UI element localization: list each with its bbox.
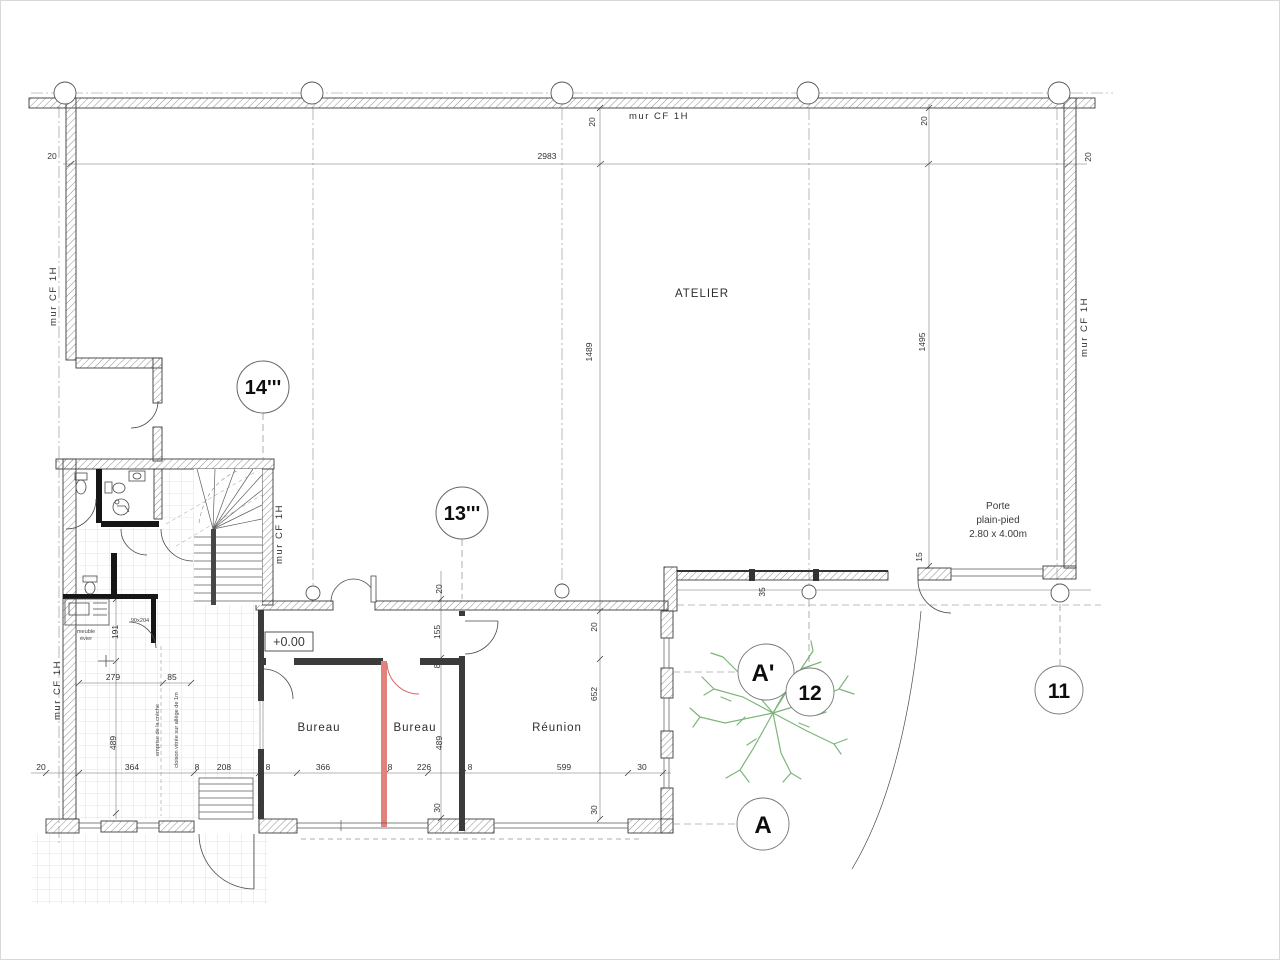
marker-label-a: A bbox=[754, 812, 771, 839]
porte-note: Porte plain-pied 2.80 x 4.00m bbox=[969, 501, 1027, 540]
room-label-reunion: Réunion bbox=[532, 722, 582, 734]
floor-plan-sheet: 14''' 13''' A' 12 A 11 ATELIER Bureau Bu… bbox=[0, 0, 1280, 960]
wheelchair-icon bbox=[113, 499, 129, 515]
dim-1495: 1495 bbox=[917, 332, 927, 351]
wall-label-left-lower: mur CF 1H bbox=[52, 660, 63, 720]
porte-note-line3: 2.80 x 4.00m bbox=[969, 529, 1027, 540]
marker-label-14: 14''' bbox=[245, 377, 282, 399]
wall-label-left-upper: mur CF 1H bbox=[48, 266, 59, 326]
dim-c597-20: 20 bbox=[589, 622, 599, 632]
dim-wall-20a: 20 bbox=[587, 117, 597, 127]
dim-b-366: 366 bbox=[316, 762, 330, 772]
room-label-bureau-left: Bureau bbox=[297, 722, 340, 734]
dim-c440-8: 8 bbox=[432, 663, 442, 668]
marker-label-13: 13''' bbox=[444, 503, 481, 525]
dim-c440-30: 30 bbox=[432, 803, 442, 813]
dim-b-8c: 8 bbox=[388, 762, 393, 772]
note-cloison: cloison vitrée sur allège de 1m bbox=[174, 692, 180, 768]
dim-c597-30: 30 bbox=[589, 805, 599, 815]
toilet-icon bbox=[105, 482, 125, 493]
dim-left-191: 191 bbox=[110, 625, 120, 639]
dim-b-8d: 8 bbox=[468, 762, 473, 772]
note-creche: emprise de la crèche bbox=[155, 704, 161, 756]
note-sink-line1: meuble bbox=[77, 629, 95, 635]
red-partition-wall bbox=[381, 661, 419, 827]
dim-35: 35 bbox=[757, 587, 767, 597]
porte-note-line2: plain-pied bbox=[976, 515, 1019, 526]
porte-note-line1: Porte bbox=[986, 501, 1010, 512]
dim-15: 15 bbox=[914, 552, 924, 562]
dim-c440-155: 155 bbox=[432, 625, 442, 639]
dim-left-279: 279 bbox=[106, 672, 120, 682]
dim-b-8a: 8 bbox=[195, 762, 200, 772]
dim-right-20: 20 bbox=[1083, 152, 1093, 162]
marker-label-12: 12 bbox=[798, 682, 821, 705]
floor-plan-canvas: 14''' 13''' A' 12 A 11 ATELIER Bureau Bu… bbox=[1, 1, 1280, 961]
dim-b-208: 208 bbox=[217, 762, 231, 772]
dim-c440-489: 489 bbox=[434, 736, 444, 750]
marker-label-11: 11 bbox=[1048, 680, 1071, 703]
dim-c597-652: 652 bbox=[589, 687, 599, 701]
dim-wall-20b: 20 bbox=[919, 116, 929, 126]
room-label-bureau-right: Bureau bbox=[393, 722, 436, 734]
dim-top-left-20: 20 bbox=[47, 151, 57, 161]
dim-b-599: 599 bbox=[557, 762, 571, 772]
dim-span-2983: 2983 bbox=[538, 151, 557, 161]
entrance-steps bbox=[199, 778, 253, 819]
dim-left-85: 85 bbox=[167, 672, 177, 682]
note-sink-line2: évier bbox=[80, 636, 92, 642]
dim-left-489: 489 bbox=[108, 736, 118, 750]
dim-c440-20: 20 bbox=[434, 584, 444, 594]
wall-label-stair: mur CF 1H bbox=[274, 504, 285, 564]
dim-1489: 1489 bbox=[584, 342, 594, 361]
room-label-atelier: ATELIER bbox=[675, 288, 729, 300]
wall-label-top: mur CF 1H bbox=[629, 111, 689, 122]
level-marker: +0.00 bbox=[265, 632, 313, 651]
dim-b-226: 226 bbox=[417, 762, 431, 772]
washbasin-icon bbox=[129, 471, 145, 481]
level-marker-value: +0.00 bbox=[273, 635, 305, 649]
dim-b-30: 30 bbox=[637, 762, 647, 772]
toilet-icon bbox=[75, 473, 87, 494]
dim-b-8b: 8 bbox=[266, 762, 271, 772]
note-door-size: 90x204 bbox=[131, 618, 149, 624]
dim-b-364: 364 bbox=[125, 762, 139, 772]
dim-b-20: 20 bbox=[36, 762, 46, 772]
marker-label-a-prime: A' bbox=[751, 660, 774, 687]
wall-label-right: mur CF 1H bbox=[1079, 297, 1090, 357]
